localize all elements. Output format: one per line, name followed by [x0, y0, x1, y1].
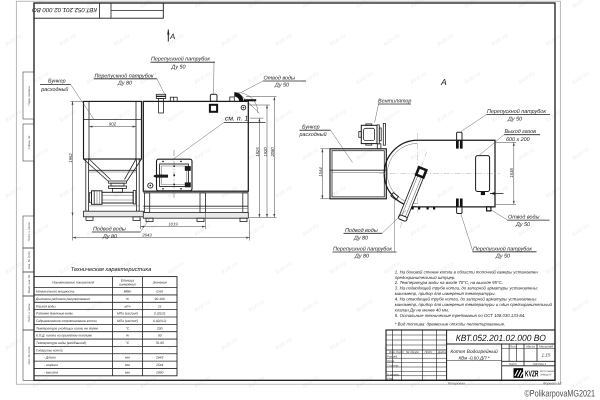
svg-text:Формат А2: Формат А2: [543, 382, 562, 386]
svg-text:0,02(0,2): 0,02(0,2): [153, 319, 166, 323]
svg-text:Ду 50: Ду 50: [495, 254, 510, 260]
svg-text:Бункер: Бункер: [48, 78, 66, 84]
svg-text:1544: 1544: [318, 167, 323, 177]
svg-text:Ду 50: Ду 50: [274, 83, 289, 89]
svg-text:Инв. № дубл.: Инв. № дубл.: [27, 251, 31, 270]
svg-text:2080: 2080: [270, 147, 275, 158]
svg-text:2. Температура воды на входе: 2. Температура воды на входе 70°С, на вы…: [394, 280, 503, 285]
svg-text:1. На боковой стенке котла в: 1. На боковой стенке котла в области топ…: [395, 269, 539, 274]
svg-text:Дата: Дата: [437, 350, 446, 354]
svg-text:°С: °С: [126, 326, 130, 330]
svg-text:МПа (кгс/см²): МПа (кгс/см²): [117, 312, 138, 316]
svg-text:Подп.: Подп.: [425, 350, 433, 354]
svg-text:- Длина: - Длина: [44, 356, 56, 360]
svg-text:МВт: МВт: [124, 290, 132, 294]
svg-text:70-95: 70-95: [155, 341, 164, 345]
svg-text:80: 80: [158, 334, 162, 338]
svg-text:%: %: [126, 297, 129, 301]
svg-text:Т.контр.: Т.контр.: [387, 364, 399, 368]
svg-text:Масштаб: Масштаб: [539, 345, 553, 349]
svg-text:мм: мм: [125, 363, 130, 367]
svg-text:КВм -0,60 ДП *: КВм -0,60 ДП *: [459, 355, 490, 360]
svg-text:%: %: [126, 334, 129, 338]
svg-text:Разраб.: Разраб.: [387, 355, 398, 359]
svg-text:Рабочее давление воды: Рабочее давление воды: [36, 312, 74, 316]
svg-text:Перепускной патрубок: Перепускной патрубок: [333, 246, 392, 252]
svg-text:21: 21: [157, 304, 162, 308]
svg-text:KVZR: KVZR: [525, 369, 539, 379]
svg-text:Масса: Масса: [526, 345, 535, 349]
svg-text:предохранительный штуцер.: предохранительный штуцер.: [395, 275, 456, 280]
svg-text:Инв. № подл.: Инв. № подл.: [27, 346, 31, 365]
svg-text:1019: 1019: [168, 221, 178, 226]
svg-text:Бункер: Бункер: [302, 125, 320, 131]
svg-text:К.П.Д. котла на принятом топли: К.П.Д. котла на принятом топливе: [36, 334, 92, 338]
svg-text:м³/ч: м³/ч: [124, 304, 130, 308]
svg-text:Ду 50: Ду 50: [507, 117, 522, 123]
svg-text:0,3(3,0): 0,3(3,0): [154, 312, 165, 316]
svg-text:манометр, прибор для измерения: манометр, прибор для измерения температу…: [395, 302, 553, 307]
svg-text:Изм.: Изм.: [389, 350, 396, 354]
svg-text:Взам. инв. №: Взам. инв. №: [27, 274, 31, 293]
svg-text:Котел Водогрейный: Котел Водогрейный: [450, 349, 498, 355]
svg-text:мм: мм: [125, 356, 130, 360]
svg-text:Пров.: Пров.: [387, 359, 395, 363]
svg-text:1962: 1962: [68, 153, 73, 163]
svg-text:0,60: 0,60: [156, 290, 163, 294]
svg-text:2643: 2643: [141, 232, 152, 237]
svg-text:°С: °С: [126, 341, 130, 345]
svg-text:клапан Ду не менее 40 мм.: клапан Ду не менее 40 мм.: [395, 307, 449, 312]
svg-text:Гидравлическое сопротивление к: Гидравлическое сопротивление котла: [36, 319, 97, 323]
svg-text:Ду 80: Ду 80: [102, 234, 117, 240]
svg-text:Копировал: Копировал: [448, 382, 465, 386]
svg-text:902: 902: [109, 122, 117, 127]
svg-text:Номинальная мощность: Номинальная мощность: [36, 290, 75, 294]
svg-text:Температура уходящих газов, не: Температура уходящих газов, не более: [36, 326, 98, 330]
svg-text:измерения: измерения: [119, 283, 136, 287]
svg-text:Лит.: Лит.: [508, 345, 516, 349]
svg-text:Расход воды: Расход воды: [36, 304, 56, 308]
svg-text:Подп. и дата: Подп. и дата: [27, 222, 31, 241]
svg-text:А: А: [169, 32, 175, 41]
svg-text:Значение: Значение: [152, 281, 167, 285]
svg-text:расходный: расходный: [40, 87, 68, 93]
svg-text:ЗАВОД.РУ: ЗАВОД.РУ: [540, 373, 552, 376]
svg-text:расходный: расходный: [299, 132, 327, 138]
svg-text:©PolikarpovaMG2021: ©PolikarpovaMG2021: [525, 387, 596, 398]
svg-text:2080: 2080: [155, 370, 164, 374]
svg-text:КОТЕЛЬНЫЙ: КОТЕЛЬНЫЙ: [540, 369, 555, 373]
svg-text:Техническая характеристика: Техническая характеристика: [71, 267, 152, 273]
svg-text:Температура воды (вход/выход): Температура воды (вход/выход): [36, 341, 86, 345]
svg-text:5. Остальные технические треб: 5. Остальные технические требования по О…: [395, 313, 526, 318]
svg-text:Справ. №: Справ. №: [27, 135, 31, 149]
svg-text:1920: 1920: [263, 147, 268, 157]
svg-text:Лист: Лист: [508, 362, 517, 366]
svg-text:Листов 1: Листов 1: [532, 362, 547, 366]
svg-text:Ду 80: Ду 80: [354, 254, 369, 260]
svg-text:Перв. примен.: Перв. примен.: [27, 85, 31, 105]
svg-text:Наименование показателя: Наименование показателя: [52, 281, 94, 285]
svg-text:Н.контр.: Н.контр.: [387, 372, 400, 376]
svg-text:Ду 50: Ду 50: [515, 222, 530, 228]
svg-text:600 х 200: 600 х 200: [506, 137, 530, 143]
svg-text:200: 200: [156, 326, 163, 330]
svg-text:Утв.: Утв.: [387, 377, 394, 381]
svg-text:30-100: 30-100: [155, 297, 165, 301]
svg-text:Подп. и дата: Подп. и дата: [27, 303, 31, 322]
svg-text:1638: 1638: [509, 168, 514, 178]
svg-text:- ширина: - ширина: [44, 363, 58, 367]
svg-text:Ду 80: Ду 80: [353, 235, 368, 241]
svg-text:№ докум.: № докум.: [406, 350, 419, 354]
svg-text:Диапазон рабочего регулировани: Диапазон рабочего регулирования: [35, 297, 90, 301]
svg-text:- высота: - высота: [44, 370, 58, 374]
svg-text:2643: 2643: [155, 356, 164, 360]
svg-text:1825: 1825: [255, 147, 260, 157]
svg-text:мм: мм: [125, 370, 130, 374]
svg-text:3. На подводящей трубе котла,: 3. На подводящей трубе котла, до запорно…: [395, 286, 539, 291]
svg-text:А: А: [440, 77, 447, 87]
svg-text:манометр, прибор для измерения: манометр, прибор для измерения температу…: [395, 291, 496, 296]
svg-text:Ду 80: Ду 80: [117, 80, 132, 86]
svg-text:1544: 1544: [156, 363, 164, 367]
svg-text:* Вид топлива: древесные отхо: * Вид топлива: древесные отходы пеллетир…: [395, 321, 505, 326]
svg-text:см. п. 1: см. п. 1: [225, 116, 248, 123]
svg-text:КВТ.052.201.02.000 ВО: КВТ.052.201.02.000 ВО: [456, 333, 546, 343]
svg-text:Габариты котла: Габариты котла: [36, 348, 63, 352]
svg-text:КВТ.052.201.02.000 ВО: КВТ.052.201.02.000 ВО: [32, 6, 97, 13]
svg-text:Ду 50: Ду 50: [171, 64, 186, 70]
svg-text:Лист: Лист: [395, 350, 404, 354]
svg-text:1:15: 1:15: [542, 353, 551, 358]
svg-text:МПа (кгс/см²): МПа (кгс/см²): [117, 319, 138, 323]
svg-text:4. На отводящей трубе котла,: 4. На отводящей трубе котла, до запорной…: [395, 297, 538, 302]
